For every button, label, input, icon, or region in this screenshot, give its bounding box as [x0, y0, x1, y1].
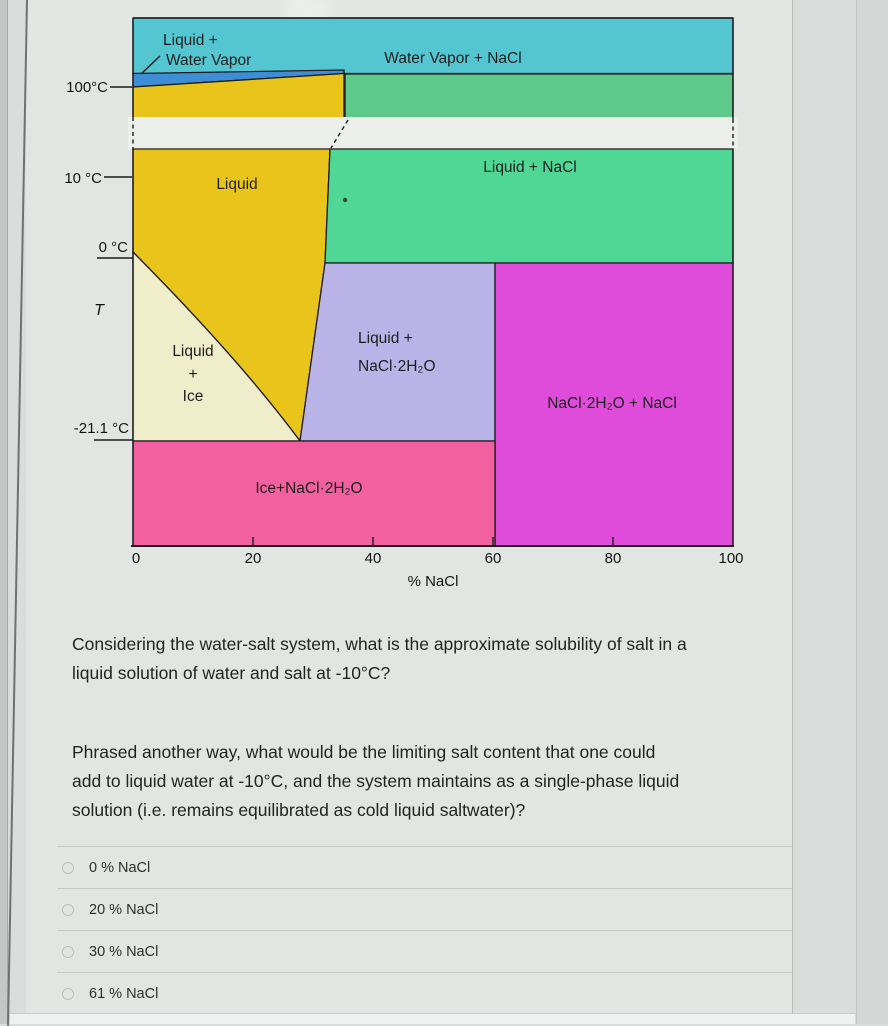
- region-label-liquid-water-vapor-line2: Water Vapor: [166, 52, 251, 69]
- x-tick-100: 100: [718, 550, 743, 567]
- option-label: 61 % NaCl: [89, 986, 158, 1002]
- option-label: 30 % NaCl: [89, 944, 158, 960]
- region-label-liquid-nacl2h2o-line1: Liquid +: [358, 330, 413, 347]
- region-label-liquid: Liquid: [216, 176, 257, 193]
- radio-icon[interactable]: [62, 988, 74, 1000]
- question-line: add to liquid water at -10°C, and the sy…: [72, 767, 679, 796]
- question-line: solution (i.e. remains equilibrated as c…: [72, 796, 679, 825]
- answer-options: 0 % NaCl 20 % NaCl 30 % NaCl 61 % NaCl: [57, 846, 792, 1014]
- next-card-edge: [10, 1013, 855, 1024]
- region-label-liquid-ice-line2: +: [188, 366, 197, 383]
- radio-icon[interactable]: [62, 904, 74, 916]
- question-line: liquid solution of water and salt at -10…: [72, 659, 687, 688]
- region-label-liquid-ice-line3: Ice: [183, 388, 204, 405]
- region-label-water-vapor-nacl: Water Vapor + NaCl: [384, 50, 521, 67]
- option-label: 0 % NaCl: [89, 860, 150, 876]
- question-paragraph-1: Considering the water-salt system, what …: [72, 630, 687, 688]
- region-label-liquid-ice-line1: Liquid: [172, 343, 213, 360]
- x-tick-80: 80: [605, 550, 622, 567]
- phase-diagram: Liquid + Water Vapor Water Vapor + NaCl …: [0, 0, 888, 610]
- answer-option-2[interactable]: 30 % NaCl: [57, 930, 792, 972]
- question-line: Phrased another way, what would be the l…: [72, 738, 679, 767]
- region-label-liquid-nacl2h2o-line2: NaCl·2H₂O: [358, 358, 436, 375]
- y-tick-100c: 100°C: [66, 79, 108, 96]
- x-axis-title: % NaCl: [408, 573, 459, 590]
- answer-option-0[interactable]: 0 % NaCl: [57, 846, 792, 888]
- y-axis-symbol: T: [94, 302, 105, 319]
- y-axis-tickmarks: [94, 87, 133, 440]
- y-tick-0c: 0 °C: [99, 239, 129, 256]
- question-paragraph-2: Phrased another way, what would be the l…: [72, 738, 679, 825]
- region-label-ice-nacl2h2o: Ice+NaCl·2H₂O: [255, 480, 362, 497]
- region-liquid-nacl2h2o: [300, 263, 495, 441]
- region-label-nacl2h2o-nacl: NaCl·2H₂O + NaCl: [547, 395, 677, 412]
- question-line: Considering the water-salt system, what …: [72, 630, 687, 659]
- option-label: 20 % NaCl: [89, 902, 158, 918]
- region-label-liquid-nacl: Liquid + NaCl: [483, 159, 576, 176]
- y-tick-10c: 10 °C: [64, 170, 102, 187]
- radio-icon[interactable]: [62, 946, 74, 958]
- x-tick-0: 0: [132, 550, 140, 567]
- radio-icon[interactable]: [62, 862, 74, 874]
- y-tick-minus21c: -21.1 °C: [74, 420, 129, 437]
- x-tick-20: 20: [245, 550, 262, 567]
- answer-option-1[interactable]: 20 % NaCl: [57, 888, 792, 930]
- x-tick-60: 60: [485, 550, 502, 567]
- axis-break-band: [128, 117, 738, 149]
- x-tick-40: 40: [365, 550, 382, 567]
- smudge-dot: [343, 198, 347, 202]
- answer-option-3[interactable]: 61 % NaCl: [57, 972, 792, 1014]
- region-label-liquid-water-vapor-line1: Liquid +: [163, 32, 218, 49]
